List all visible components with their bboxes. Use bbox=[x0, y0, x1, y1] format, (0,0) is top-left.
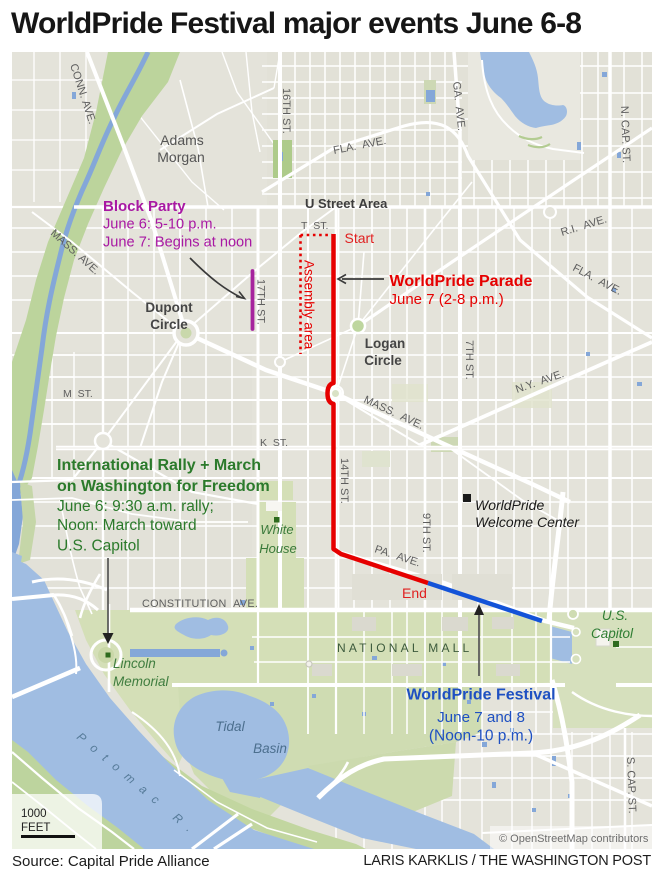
svg-text:(Noon-10 p.m.): (Noon-10 p.m.) bbox=[429, 728, 533, 745]
svg-text:Memorial: Memorial bbox=[113, 674, 170, 689]
svg-text:14TH ST.: 14TH ST. bbox=[338, 458, 350, 504]
svg-text:CONSTITUTION AVE.: CONSTITUTION AVE. bbox=[142, 598, 258, 610]
svg-text:1000: 1000 bbox=[21, 808, 47, 820]
svg-text:U.S. Capitol: U.S. Capitol bbox=[57, 538, 140, 555]
svg-text:June 7 (2-8 p.m.): June 7 (2-8 p.m.) bbox=[390, 291, 504, 308]
svg-text:16TH ST.: 16TH ST. bbox=[280, 88, 292, 134]
svg-text:WorldPride Parade: WorldPride Parade bbox=[390, 273, 533, 290]
svg-text:U.S.: U.S. bbox=[602, 608, 628, 623]
svg-text:17TH ST.: 17TH ST. bbox=[255, 279, 267, 325]
svg-text:7TH ST.: 7TH ST. bbox=[463, 340, 475, 380]
svg-text:June 6: 5-10 p.m.: June 6: 5-10 p.m. bbox=[103, 217, 217, 233]
svg-text:Capitol: Capitol bbox=[591, 626, 634, 641]
svg-text:White: White bbox=[260, 522, 293, 537]
svg-text:Lincoln: Lincoln bbox=[113, 656, 156, 671]
svg-text:Assembly area: Assembly area bbox=[302, 260, 317, 350]
svg-text:on Washington for Freedom: on Washington for Freedom bbox=[57, 478, 270, 495]
svg-text:M ST.: M ST. bbox=[63, 388, 93, 400]
svg-text:June 7 and 8: June 7 and 8 bbox=[437, 709, 525, 726]
svg-text:WorldPride Festival: WorldPride Festival bbox=[406, 687, 555, 704]
svg-text:Basin: Basin bbox=[253, 741, 287, 756]
svg-text:N. CAP. ST.: N. CAP. ST. bbox=[618, 106, 632, 164]
svg-text:Circle: Circle bbox=[150, 317, 188, 332]
svg-text:Block Party: Block Party bbox=[103, 198, 186, 215]
svg-text:Adams: Adams bbox=[160, 132, 204, 148]
svg-text:Welcome Center: Welcome Center bbox=[475, 514, 580, 530]
svg-text:NATIONAL MALL: NATIONAL MALL bbox=[337, 641, 472, 655]
svg-text:9TH ST.: 9TH ST. bbox=[420, 513, 432, 553]
svg-text:House: House bbox=[259, 541, 297, 556]
svg-text:Dupont: Dupont bbox=[145, 300, 193, 315]
svg-text:© OpenStreetMap contributors: © OpenStreetMap contributors bbox=[499, 833, 649, 845]
svg-text:June 7: Begins at noon: June 7: Begins at noon bbox=[103, 235, 252, 251]
svg-text:FEET: FEET bbox=[21, 822, 50, 834]
svg-text:WorldPride: WorldPride bbox=[475, 497, 544, 513]
svg-text:S. CAP. ST.: S. CAP. ST. bbox=[624, 757, 638, 814]
svg-text:T ST.: T ST. bbox=[301, 220, 328, 232]
svg-text:Circle: Circle bbox=[364, 353, 402, 368]
svg-text:End: End bbox=[402, 585, 427, 601]
svg-text:U Street Area: U Street Area bbox=[305, 196, 388, 211]
svg-text:International Rally + March: International Rally + March bbox=[57, 457, 261, 474]
svg-text:Tidal: Tidal bbox=[215, 719, 245, 734]
svg-text:Noon: March toward: Noon: March toward bbox=[57, 517, 197, 534]
svg-text:K ST.: K ST. bbox=[260, 437, 288, 449]
svg-text:Morgan: Morgan bbox=[157, 149, 204, 165]
svg-text:June 6: 9:30 a.m. rally;: June 6: 9:30 a.m. rally; bbox=[57, 498, 214, 515]
svg-text:Logan: Logan bbox=[365, 336, 406, 351]
svg-text:Start: Start bbox=[345, 230, 375, 246]
